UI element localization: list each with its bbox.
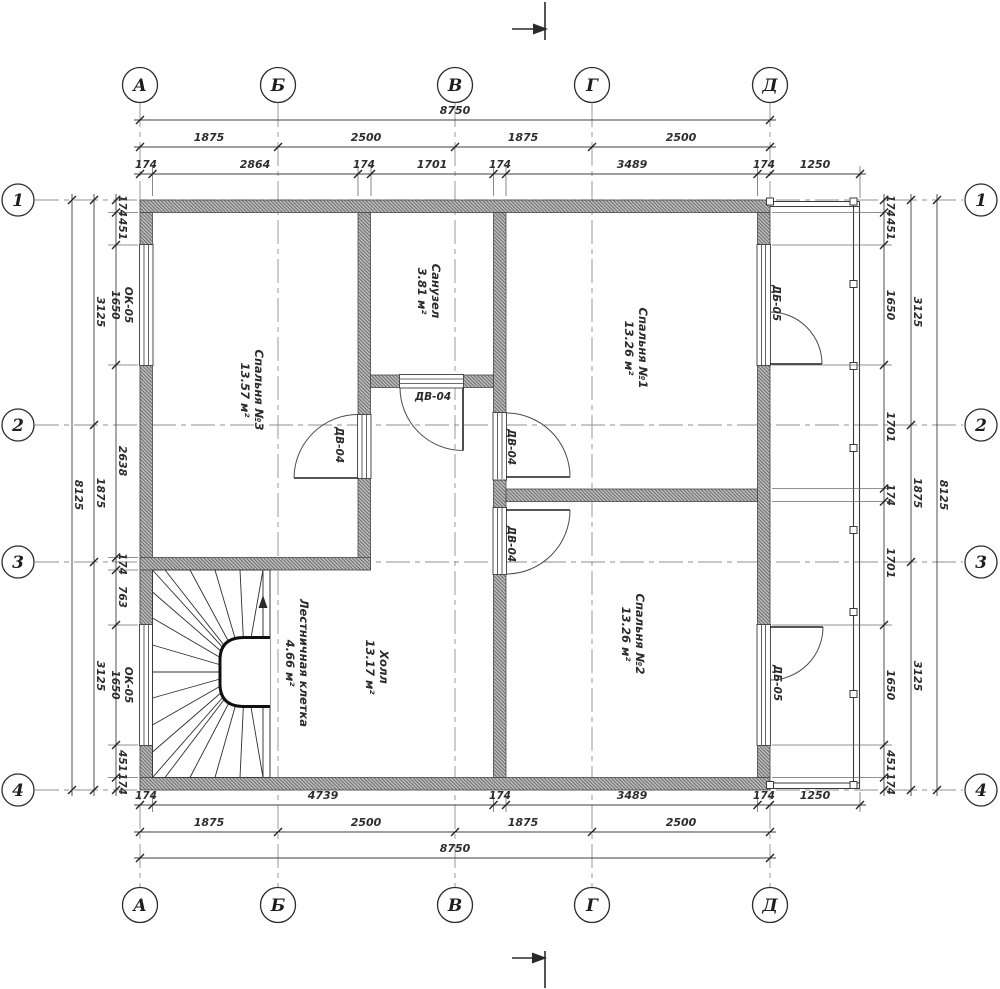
dim-text: 2500	[666, 816, 697, 829]
room-name: Холл	[377, 649, 391, 684]
dimensions-bottom: 174 4739 174 3489 174 1250 1875 2500 187…	[135, 789, 831, 855]
dim-text: 1875	[94, 478, 107, 509]
axis-bubble-col: В	[447, 896, 462, 916]
window-mark: ОК-05	[122, 287, 134, 323]
floor-plan-sheet: 8750 1875 2500 1875 2500 174 2864 174 17…	[0, 0, 1000, 989]
room-area: 13.57 м²	[238, 363, 252, 418]
dim-text: 4739	[307, 789, 339, 802]
dim-text: 174	[135, 159, 157, 171]
room-area: 4.66 м²	[283, 639, 297, 687]
axis-bubble-col: А	[131, 896, 147, 916]
dim-text: 174	[884, 773, 896, 795]
window-dim: 1650	[109, 290, 121, 319]
axis-bubble-col: Д	[761, 896, 778, 916]
dim-text: 8750	[440, 842, 471, 855]
dim-text: 174	[353, 159, 375, 171]
axis-bubble-col: Б	[270, 76, 286, 96]
room-name: Спальня №3	[252, 349, 266, 430]
dim-text: 1875	[508, 816, 539, 829]
dim-text: 451	[116, 749, 128, 772]
room-name: Спальня №2	[633, 593, 647, 674]
dim-text: 451	[884, 749, 896, 772]
wall-exterior-left	[140, 365, 153, 625]
balcony-rail-bottom	[770, 783, 860, 789]
wall-interior-bedroom3	[358, 213, 371, 416]
dimensions-top: 8750 1875 2500 1875 2500 174 2864 174 17…	[135, 104, 831, 171]
door-mark-balcony-lower: ДБ-05	[771, 664, 783, 701]
balcony-rail-right	[854, 202, 860, 789]
axis-bubble-row: 1	[975, 191, 987, 211]
dim-text: 1650	[884, 290, 897, 321]
axis-bubble-row: 1	[12, 191, 24, 211]
dim-text: 174	[753, 790, 775, 802]
wall-interior-bathroom	[371, 375, 401, 388]
stair-landing	[220, 638, 270, 707]
dim-text: 3125	[911, 661, 924, 692]
wall-interior-bedrooms-divider	[506, 489, 758, 502]
dim-text: 1701	[884, 412, 897, 443]
dim-text: 2500	[351, 816, 382, 829]
dimensions-right: 174 451 1650 1701 174 1701 1650 451 174 …	[884, 195, 950, 795]
door-bedroom3	[294, 415, 371, 479]
dim-text: 763	[116, 586, 128, 608]
balcony-rail-top	[770, 202, 860, 207]
staircase	[153, 570, 271, 778]
dim-text: 8125	[937, 480, 950, 511]
wall-interior-bathroom	[463, 375, 494, 388]
window-ok05-lower	[140, 625, 154, 746]
wall-exterior-top	[140, 200, 770, 213]
room-label-bathroom: Санузел 3.81 м²	[415, 264, 443, 319]
dim-text: 174	[489, 790, 511, 802]
room-label-bedroom2: Спальня №2 13.26 м²	[619, 593, 647, 674]
dim-text: 3125	[94, 661, 107, 692]
dim-text: 2500	[666, 131, 697, 144]
door-bedroom1	[493, 413, 570, 481]
dimensions-left: 8125 3125 1875 3125 174 451 ОК-05 1650 2…	[72, 195, 134, 795]
axis-bubble-col: Г	[585, 76, 599, 96]
wall-exterior-left	[140, 213, 153, 246]
room-area: 13.17 м²	[363, 640, 377, 695]
axis-bubble-col: Б	[270, 896, 286, 916]
axis-bubble-row: 2	[11, 416, 24, 436]
balcony-door-db05-upper	[757, 245, 822, 366]
door-mark-bedroom1: ДВ-04	[505, 428, 517, 465]
wall-interior-central	[494, 480, 507, 509]
dim-text: 1250	[800, 158, 831, 171]
floor-plan-drawing: 8750 1875 2500 1875 2500 174 2864 174 17…	[0, 0, 1000, 989]
room-name: Лестничная клетка	[297, 598, 311, 727]
wall-interior-central	[494, 574, 507, 778]
dim-text: 174	[116, 553, 128, 575]
wall-exterior-right	[758, 213, 771, 246]
dim-text: 451	[116, 217, 128, 240]
wall-exterior-right	[758, 745, 771, 778]
dim-text: 174	[116, 773, 128, 795]
wall-interior-central	[494, 213, 507, 413]
dim-text: 1875	[508, 131, 539, 144]
wall-interior-bedroom3	[358, 478, 371, 570]
dim-text: 1701	[417, 158, 448, 171]
door-mark-bedroom3: ДВ-04	[333, 426, 345, 463]
wall-exterior-right	[758, 365, 771, 625]
window-mark: ОК-05	[122, 667, 134, 703]
dim-text: 174	[135, 790, 157, 802]
dim-text: 174	[884, 484, 896, 506]
door-bathroom	[400, 375, 464, 451]
axis-bubble-row: 4	[12, 781, 24, 801]
window-mark-ok05-upper: ОК-05 1650	[109, 287, 134, 323]
wall-exterior-left	[140, 745, 153, 778]
dim-text: 1875	[911, 478, 924, 509]
door-mark-bathroom: ДВ-04	[414, 391, 451, 403]
axis-bubble-col: А	[131, 76, 147, 96]
dim-text: 2638	[116, 446, 129, 477]
dim-text: 174	[753, 159, 775, 171]
room-label-hall: Холл 13.17 м²	[363, 640, 391, 695]
window-mark-ok05-lower: ОК-05 1650	[109, 667, 134, 703]
window-dim: 1650	[109, 670, 121, 699]
door-bedroom2	[493, 508, 570, 575]
room-label-bedroom1: Спальня №1 13.26 м²	[622, 307, 650, 388]
axis-bubble-row: 3	[975, 553, 987, 573]
room-area: 13.26 м²	[622, 321, 636, 376]
balcony-door-db05-lower	[757, 625, 823, 746]
wall-exterior-bottom	[140, 778, 770, 791]
axis-bubble-row: 4	[975, 781, 987, 801]
dim-text: 1250	[800, 789, 831, 802]
dim-text: 174	[489, 159, 511, 171]
dim-text: 174	[116, 195, 128, 217]
room-label-stairwell: Лестничная клетка 4.66 м²	[283, 598, 311, 727]
dim-text: 3125	[94, 297, 107, 328]
room-name: Санузел	[429, 264, 443, 319]
room-name: Спальня №1	[636, 307, 650, 388]
section-cut-mark-top	[512, 2, 548, 40]
dim-text: 8750	[440, 104, 471, 117]
dim-text: 174	[884, 195, 896, 217]
room-area: 13.26 м²	[619, 607, 633, 662]
axis-bubble-col: Д	[761, 76, 778, 96]
axis-bubble-col: Г	[585, 896, 599, 916]
dim-text: 2500	[351, 131, 382, 144]
door-mark-bedroom2: ДВ-04	[505, 525, 517, 562]
dim-text: 1701	[884, 548, 897, 579]
wall-interior-bedroom3-bottom	[140, 558, 371, 571]
dim-text: 1875	[194, 131, 225, 144]
window-ok05-upper	[140, 245, 154, 366]
dim-text: 8125	[72, 480, 85, 511]
axis-bubble-row: 2	[974, 416, 987, 436]
dim-text: 451	[884, 217, 896, 240]
dim-text: 1650	[884, 670, 897, 701]
axis-bubble-row: 3	[12, 553, 24, 573]
room-area: 3.81 м²	[415, 268, 429, 315]
room-label-bedroom3: Спальня №3 13.57 м²	[238, 349, 266, 430]
dim-text: 2864	[240, 158, 271, 171]
dim-text: 3489	[617, 158, 648, 171]
dim-text: 3489	[617, 789, 648, 802]
section-cut-mark-bottom	[512, 951, 547, 988]
dim-text: 1875	[194, 816, 225, 829]
dim-text: 3125	[911, 297, 924, 328]
door-mark-balcony-upper: ДБ-05	[770, 284, 782, 321]
axis-bubble-col: В	[447, 76, 462, 96]
